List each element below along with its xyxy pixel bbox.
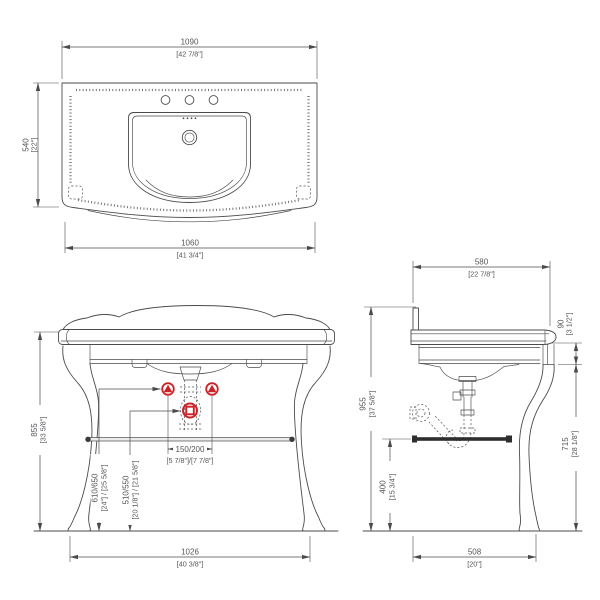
dim-front-console-height: 855 [33 5/8"] — [29, 332, 59, 531]
drain-opening-inner — [185, 133, 194, 142]
dim-label-inch: [37 5/8"] — [368, 391, 377, 418]
dim-label-inch: [42 7/8"] — [176, 50, 203, 59]
dim-side-counter-depth: 580 [22 7/8"] — [413, 258, 550, 327]
basin-underside-side — [421, 364, 519, 381]
apron-side — [419, 345, 554, 365]
dim-label-inch: [3 1/2"] — [565, 313, 574, 336]
dim-label-mm: 400 — [379, 480, 388, 494]
faucet-hole-center — [185, 96, 194, 105]
overflow-holes — [183, 117, 197, 119]
dim-label-inch: [20"] — [467, 560, 482, 569]
dim-label-mm: 150/200 — [176, 445, 205, 454]
towel-bar-side — [412, 436, 512, 443]
dim-label-inch: [15 3/4"] — [388, 474, 397, 501]
basin-sump-curve — [146, 180, 233, 197]
side-view: 580 [22 7/8"] 90 [3 1/2"] 715 [28 1/8"] … — [358, 258, 583, 569]
supply-connection-right-symbol — [206, 383, 218, 395]
towel-bar-front — [85, 437, 294, 442]
leg-top-block — [543, 345, 554, 365]
dim-label-mm: 1026 — [181, 548, 199, 557]
faucet-hole-right — [209, 96, 218, 105]
drain-opening-outer — [182, 130, 196, 144]
p-trap-dashed — [410, 405, 475, 448]
leg-position-marker-left — [69, 186, 83, 199]
counter-slab — [59, 330, 335, 345]
drain-pipe-dashed — [179, 380, 202, 431]
console-leg-right — [294, 346, 330, 531]
dim-label-mm: 715 — [561, 437, 570, 451]
vanity-technical-drawing: 1090 [42 7/8"] 540 [22"] 1060 [41 3/4"] — [0, 0, 600, 600]
supply-connection-left-symbol — [162, 383, 174, 395]
dim-front-leg-span: 1026 [40 3/8"] — [70, 536, 310, 569]
dim-side-clearance-height: 715 [28 1/8"] — [561, 365, 581, 532]
dim-label-inch: [20 1/8"] / [21 5/8"] — [131, 460, 140, 519]
dim-label-inch: [24"] / [25 5/8"] — [100, 464, 109, 511]
scalloped-top-edge — [63, 306, 330, 330]
dim-label-mm: 580 — [475, 258, 489, 267]
dim-label-inch: [5 7/8"]/[7 7/8"] — [166, 456, 213, 465]
dim-side-towel-bar-height: 400 [15 3/4"] — [378, 439, 412, 531]
apron-front-lip — [88, 211, 291, 222]
dim-top-overall-width: 1090 [42 7/8"] — [62, 38, 317, 80]
top-view: 1090 [42 7/8"] 540 [22"] 1060 [41 3/4"] — [22, 38, 318, 260]
dim-top-overall-depth: 540 [22"] — [22, 83, 60, 207]
dim-label-mm: 1060 — [181, 239, 199, 248]
leg-position-marker-right — [297, 186, 311, 199]
slab-end-curl-right — [324, 330, 327, 344]
dim-label-mm: 955 — [359, 397, 368, 411]
dim-side-apron-height: 90 [3 1/2"] — [552, 313, 582, 365]
faucet-hole-left — [161, 96, 170, 105]
basin-outline-outer — [129, 113, 251, 203]
drain-assembly-side — [453, 377, 476, 416]
backsplash — [413, 308, 419, 330]
dim-label-inch: [22 7/8"] — [468, 270, 495, 279]
basin-underside-curve — [147, 364, 232, 375]
console-leg-side — [519, 365, 554, 532]
supply-triangle-icon — [208, 385, 217, 392]
dim-front-drain-height: 510/550 [20 1/8"] / [21 5/8"] — [122, 411, 181, 531]
basin-outline-inner — [133, 116, 247, 199]
dim-label-inch: [28 1/8"] — [570, 431, 579, 458]
dim-label-inch: [40 3/8"] — [177, 560, 204, 569]
dim-label-mm: 610/650 — [91, 473, 100, 502]
dim-label-mm: 510/550 — [122, 475, 131, 504]
slab-end-curl-left — [66, 330, 69, 344]
dim-side-leg-span-depth: 508 [20"] — [413, 534, 536, 569]
drain-connection-symbol — [183, 404, 197, 418]
dim-label-mm: 1090 — [181, 38, 199, 47]
apron-front — [90, 345, 307, 375]
dim-label-inch: [22"] — [30, 138, 39, 153]
front-view: 855 [33 5/8"] 610/650 [24"] / [25 5/8"] … — [29, 306, 338, 569]
technical-drawing-page: 1090 [42 7/8"] 540 [22"] 1060 [41 3/4"] — [0, 0, 600, 600]
stitch-line-bottom — [78, 200, 301, 211]
counter-slab-side — [411, 330, 556, 345]
dim-label-mm: 508 — [468, 548, 482, 557]
dim-label-inch: [41 3/4"] — [177, 251, 204, 260]
dim-top-lower-width: 1060 [41 3/4"] — [65, 222, 315, 260]
supply-triangle-icon — [164, 385, 173, 392]
dim-label-inch: [33 5/8"] — [39, 417, 48, 444]
